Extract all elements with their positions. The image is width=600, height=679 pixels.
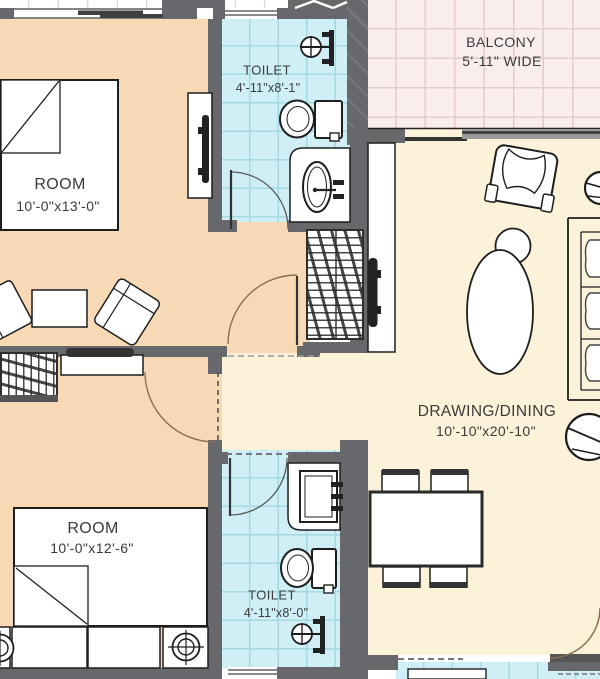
door-toilet-bottom	[226, 454, 290, 516]
label-bedroom-top: ROOM	[34, 176, 85, 194]
entry-door	[550, 608, 600, 658]
label-bedroom-top-dims: 10'-0"x13'-0"	[16, 198, 100, 214]
dresser-bedroom-bottom	[61, 348, 143, 375]
wc-toilet-top-icon	[280, 101, 342, 142]
kitchen-fixture-cut	[408, 669, 486, 679]
centerpiece-oval-living	[467, 250, 533, 374]
armchair-living	[484, 144, 561, 213]
window-toilet-top-glazing	[225, 11, 277, 15]
door-bedroom-top	[228, 275, 297, 345]
side-table-living-bottom	[566, 414, 600, 460]
door-bedroom-bottom	[145, 372, 218, 442]
shower-toilet-bottom-icon	[291, 616, 325, 654]
sofa-living	[568, 218, 600, 400]
shower-toilet-top-icon	[300, 30, 334, 66]
label-toilet-bottom: TOILET	[248, 588, 296, 603]
washbasin-toilet-top-icon	[290, 148, 350, 222]
dining-set	[370, 469, 482, 588]
floor-plan: ROOM 10'-0"x13'-0" TOILET 4'-11"x8'-1" B…	[0, 0, 600, 679]
window-toilet-bottom-glazing	[228, 670, 277, 674]
label-toilet-top: TOILET	[243, 63, 291, 78]
washbasin-toilet-bottom-icon	[288, 463, 343, 530]
label-bedroom-bottom: ROOM	[67, 520, 118, 538]
chair-bedroom-top-right	[93, 277, 161, 347]
label-balcony-dims: 5'-11" WIDE	[462, 53, 541, 69]
label-living-dims: 10'-10"x20'-10"	[436, 423, 536, 439]
wc-toilet-bottom-icon	[281, 549, 336, 593]
tv-unit-bedroom-top	[188, 93, 212, 198]
label-toilet-top-dims: 4'-11"x8'-1"	[236, 81, 300, 95]
label-toilet-bottom-dims: 4'-11"x8'-0"	[244, 606, 308, 620]
sliding-window-bedroom-top	[14, 9, 163, 18]
label-bedroom-bottom-dims: 10'-0"x12'-6"	[50, 540, 134, 556]
chair-bedroom-top-left	[0, 279, 33, 343]
side-table-living-top	[585, 172, 600, 204]
duct-chevron-icon	[295, 1, 347, 8]
side-table-bedroom-top	[32, 290, 87, 327]
bedside-table-right	[163, 627, 208, 668]
linework-layer	[0, 0, 600, 679]
balcony-sliding-door	[368, 129, 600, 142]
door-toilet-top	[231, 170, 288, 229]
label-balcony: BALCONY	[466, 34, 536, 50]
tv-unit-living	[368, 143, 395, 352]
label-living: DRAWING/DINING	[418, 403, 557, 421]
